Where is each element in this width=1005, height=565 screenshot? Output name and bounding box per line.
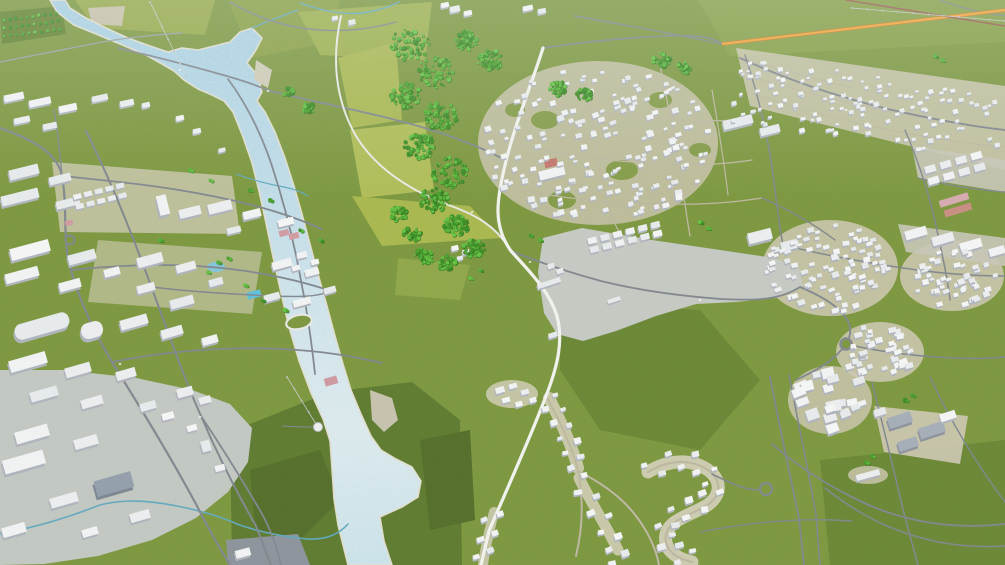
map-viewport: 3D aerial city map render [0,0,1005,565]
haze-overlay [0,0,1005,565]
map-3d-render [0,0,1005,565]
atmosphere-layer [0,0,1005,565]
